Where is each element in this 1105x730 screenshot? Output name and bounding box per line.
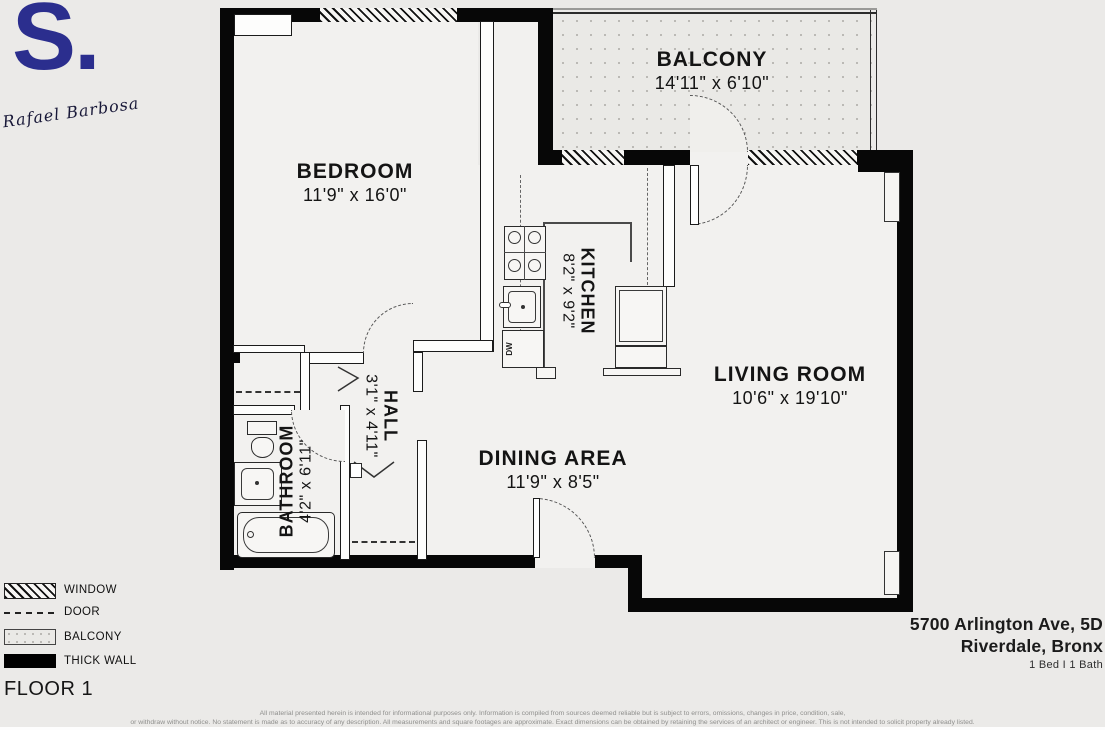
legend-swatch-thick-wall: [4, 654, 56, 668]
floor-kitchen-strip: [494, 21, 538, 167]
legend-swatch-balcony: [4, 629, 56, 645]
kitchen-cabinet-dashed-right: [647, 168, 648, 285]
room-label-hall: HALL 3'1" x 4'11": [362, 374, 401, 458]
wall-hall-east-stub: [413, 352, 423, 392]
door-jamb-hall: [350, 463, 362, 478]
room-label-bedroom: BEDROOM 11'9" x 16'0": [297, 160, 414, 206]
room-name-balcony: BALCONY: [655, 48, 769, 72]
legend-label-door: DOOR: [64, 606, 100, 618]
room-dims-kitchen: 8'2" x 9'2": [559, 248, 577, 335]
room-dims-balcony: 14'11" x 6'10": [655, 73, 769, 94]
window-inset-right-bottom: [884, 551, 900, 595]
refrigerator-inner: [619, 290, 663, 342]
room-label-bathroom: BATHROOM 4'2" x 6'11": [277, 425, 316, 538]
kitchen-counter-base-left: [536, 367, 556, 379]
kitchen-counter-south: [615, 346, 667, 368]
bedroom-shelf: [234, 14, 292, 36]
wall-kitchen-living-divider: [663, 165, 675, 287]
window-bedroom-top: [320, 8, 457, 22]
room-label-living-room: LIVING ROOM 10'6" x 19'10": [714, 363, 866, 409]
legend-swatch-door: [4, 612, 54, 614]
room-name-bedroom: BEDROOM: [297, 160, 414, 184]
wall-bathroom-north: [233, 405, 295, 415]
door-leaf-entry: [533, 498, 540, 558]
kitchen-counter-base: [603, 368, 681, 376]
outer-wall-bottom-right: [628, 598, 913, 612]
door-leaf-symbol-bedroom: [336, 365, 362, 393]
toilet-bowl: [251, 437, 274, 458]
stove-burner-1: [508, 231, 521, 244]
window-balcony-left: [562, 150, 624, 165]
room-label-kitchen: KITCHEN 8'2" x 9'2": [559, 248, 598, 335]
balcony-rail-right: [870, 10, 877, 152]
room-name-hall: HALL: [380, 374, 401, 458]
disclaimer-text: All material presented herein is intende…: [0, 710, 1105, 727]
wall-bedroom-south: [233, 345, 305, 353]
floor-number-label: FLOOR 1: [4, 678, 93, 701]
brand-logo: S.: [12, 0, 99, 92]
legend-label-window: WINDOW: [64, 584, 117, 596]
outer-wall-left: [220, 8, 234, 570]
bathroom-sink-drain: [255, 481, 259, 485]
wall-closet-east: [300, 352, 310, 415]
room-label-balcony: BALCONY 14'11" x 6'10": [655, 48, 769, 94]
wall-balcony-west-pillar: [538, 8, 553, 165]
room-dims-dining-area: 11'9" x 8'5": [478, 472, 627, 493]
toilet-tank: [247, 421, 277, 435]
stove-divider-v: [524, 226, 525, 280]
listing-address-line2: Riverdale, Bronx: [910, 635, 1103, 657]
room-label-dining-area: DINING AREA 11'9" x 8'5": [478, 447, 627, 493]
wall-hall-closet-east: [417, 440, 427, 560]
dishwasher-label: DW: [501, 339, 519, 359]
floorplan-page: S. Rafael Barbosa: [0, 0, 1105, 730]
disclaimer-line2: or withdraw without notice. No statement…: [0, 719, 1105, 728]
room-dims-hall: 3'1" x 4'11": [362, 374, 380, 458]
bathtub-faucet: [247, 531, 254, 538]
kitchen-counter-edge-h: [543, 222, 631, 224]
room-dims-bedroom: 11'9" x 16'0": [297, 185, 414, 206]
disclaimer-line1: All material presented herein is intende…: [0, 710, 1105, 719]
closet-door-hall: [352, 541, 415, 543]
window-inset-right-top: [884, 172, 900, 222]
stove-burner-3: [508, 259, 521, 272]
balcony-rail-top: [553, 8, 877, 14]
room-name-kitchen: KITCHEN: [577, 248, 598, 335]
room-dims-living-room: 10'6" x 19'10": [714, 388, 866, 409]
room-name-dining-area: DINING AREA: [478, 447, 627, 471]
door-leaf-balcony: [690, 165, 699, 225]
stove-burner-2: [528, 231, 541, 244]
legend-label-balcony: BALCONY: [64, 631, 122, 643]
kitchen-faucet: [499, 302, 511, 308]
window-living-top: [747, 150, 857, 165]
opening-balcony-door: [690, 150, 748, 165]
kitchen-drain: [521, 305, 525, 309]
listing-address-line1: 5700 Arlington Ave, 5D: [910, 613, 1103, 635]
stove-burner-4: [528, 259, 541, 272]
wall-bedroom-east: [480, 21, 494, 352]
listing-info: 5700 Arlington Ave, 5D Riverdale, Bronx …: [910, 613, 1103, 671]
brand-signature: Rafael Barbosa: [1, 92, 152, 132]
legend-swatch-window: [4, 583, 56, 599]
room-dims-bathroom: 4'2" x 6'11": [298, 425, 316, 538]
room-name-living-room: LIVING ROOM: [714, 363, 866, 387]
kitchen-counter-edge-v2: [630, 222, 632, 262]
legend-label-thick-wall: THICK WALL: [64, 655, 137, 667]
room-name-bathroom: BATHROOM: [277, 425, 298, 538]
closet-door-bedroom: [236, 391, 300, 393]
listing-beds-baths: 1 Bed I 1 Bath: [910, 659, 1103, 671]
stove-divider-h: [504, 252, 546, 253]
wall-kitchen-southwest: [413, 340, 493, 352]
